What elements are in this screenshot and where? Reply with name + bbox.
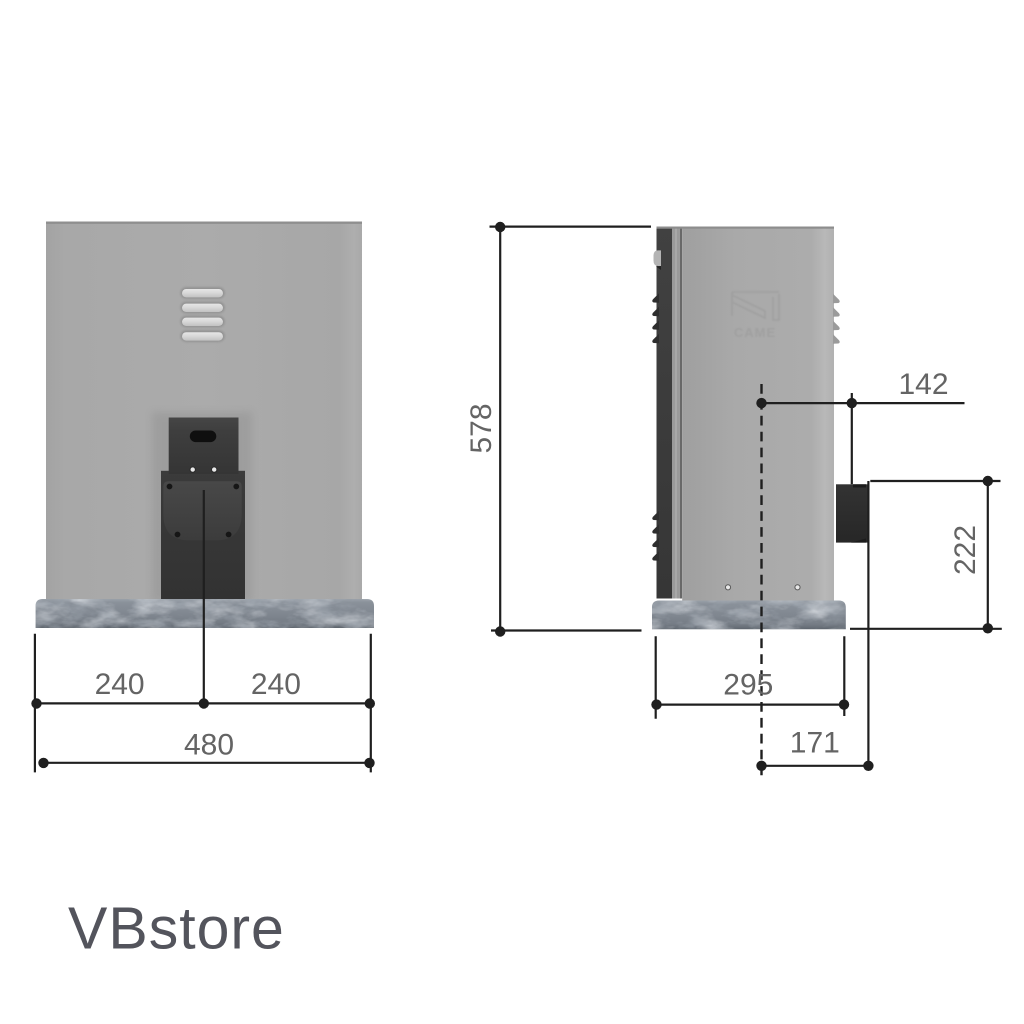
- svg-text:VBstore: VBstore: [68, 896, 285, 962]
- svg-text:142: 142: [898, 368, 948, 401]
- svg-text:480: 480: [184, 729, 234, 762]
- svg-text:295: 295: [723, 669, 773, 702]
- svg-text:240: 240: [251, 668, 301, 701]
- svg-text:CAME: CAME: [734, 325, 776, 340]
- svg-text:171: 171: [790, 726, 840, 759]
- svg-text:222: 222: [949, 525, 982, 575]
- svg-text:240: 240: [95, 668, 145, 701]
- svg-text:578: 578: [465, 403, 498, 453]
